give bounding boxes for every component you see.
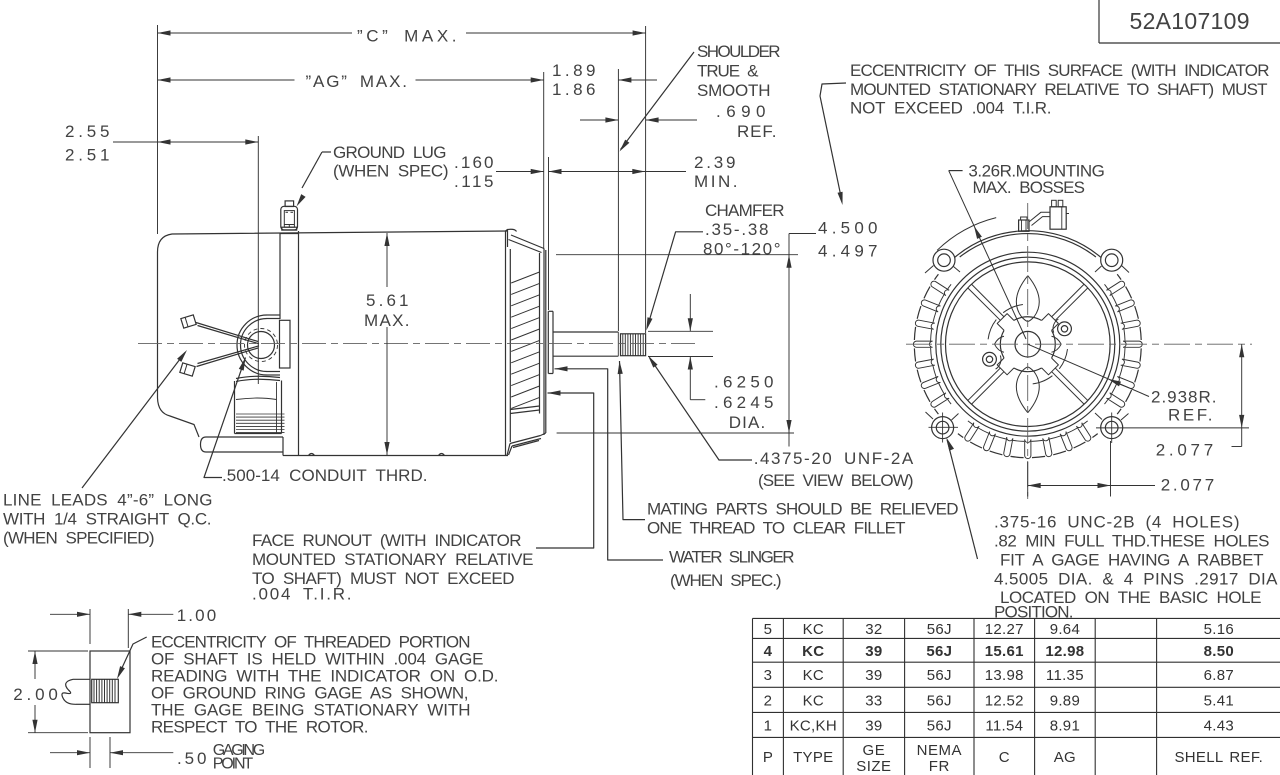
svg-text:11.35: 11.35 [1046, 667, 1084, 684]
svg-text:NEMA: NEMA [917, 742, 962, 759]
svg-text:2.938R.: 2.938R. [1151, 388, 1217, 407]
svg-text:DIA.: DIA. [729, 413, 766, 432]
svg-text:MOUNTED STATIONARY RELATIVE: MOUNTED STATIONARY RELATIVE [252, 550, 534, 569]
svg-text:FR: FR [929, 758, 950, 775]
svg-text:ONE THREAD TO CLEAR FILLET: ONE THREAD TO CLEAR FILLET [647, 519, 906, 538]
svg-text:.6250: .6250 [714, 373, 774, 392]
svg-text:56J: 56J [927, 621, 952, 638]
svg-text:.375-16 UNC-2B (4 HOLES): .375-16 UNC-2B (4 HOLES) [994, 513, 1240, 532]
svg-text:SIZE: SIZE [856, 758, 891, 775]
svg-text:5.61: 5.61 [366, 291, 409, 310]
svg-text:5.16: 5.16 [1204, 621, 1234, 638]
svg-text:39: 39 [865, 643, 882, 660]
svg-text:2.51: 2.51 [65, 146, 110, 165]
svg-text:2.00: 2.00 [13, 685, 58, 704]
svg-text:2.39: 2.39 [694, 153, 736, 172]
svg-text:4.43: 4.43 [1204, 717, 1234, 734]
svg-text:1.00: 1.00 [177, 606, 217, 625]
svg-text:.004 T.I.R.: .004 T.I.R. [252, 585, 352, 604]
svg-text:5: 5 [764, 621, 773, 638]
svg-text:”C” MAX.: ”C” MAX. [357, 27, 457, 46]
svg-text:5.41: 5.41 [1204, 692, 1234, 709]
svg-text:MAX. BOSSES: MAX. BOSSES [973, 178, 1086, 197]
svg-text:FIT A GAGE HAVING A RABBET: FIT A GAGE HAVING A RABBET [1000, 551, 1264, 570]
svg-text:KC: KC [803, 621, 824, 638]
svg-text:9.64: 9.64 [1050, 621, 1080, 638]
svg-text:6.87: 6.87 [1204, 667, 1234, 684]
svg-text:4: 4 [764, 643, 773, 660]
svg-text:1.89: 1.89 [552, 61, 596, 80]
svg-text:80°-120°: 80°-120° [703, 240, 781, 259]
svg-text:WATER SLINGER: WATER SLINGER [669, 548, 795, 567]
svg-text:MAX.: MAX. [364, 311, 410, 330]
svg-text:4.500: 4.500 [818, 219, 878, 238]
svg-text:1.86: 1.86 [552, 80, 596, 99]
svg-text:12.27: 12.27 [985, 621, 1024, 638]
svg-text:ECCENTRICITY OF THIS SURFACE (: ECCENTRICITY OF THIS SURFACE (WITH INDIC… [850, 61, 1270, 80]
svg-text:KC: KC [803, 667, 824, 684]
svg-text:(WHEN SPEC.): (WHEN SPEC.) [670, 571, 782, 590]
svg-text:.50: .50 [177, 749, 207, 768]
svg-text:32: 32 [865, 621, 882, 638]
svg-text:POINT: POINT [213, 756, 254, 773]
svg-text:.35-.38: .35-.38 [705, 220, 769, 239]
svg-text:.160: .160 [454, 153, 494, 172]
svg-text:CHAMFER: CHAMFER [705, 201, 785, 220]
svg-text:NOT EXCEED .004 T.I.R.: NOT EXCEED .004 T.I.R. [850, 99, 1052, 118]
svg-text:8.91: 8.91 [1050, 717, 1080, 734]
svg-text:1: 1 [764, 717, 773, 734]
svg-text:39: 39 [865, 667, 882, 684]
svg-text:RESPECT TO THE ROTOR.: RESPECT TO THE ROTOR. [151, 718, 369, 737]
svg-text:2.077: 2.077 [1161, 476, 1215, 495]
svg-text:4.5005 DIA. & 4 PINS .2917 DIA: 4.5005 DIA. & 4 PINS .2917 DIA [994, 570, 1278, 589]
svg-text:TYPE: TYPE [793, 749, 833, 766]
svg-text:”AG” MAX.: ”AG” MAX. [306, 72, 408, 91]
svg-text:GROUND LUG: GROUND LUG [333, 143, 447, 162]
svg-text:MATING PARTS SHOULD BE RELIEVE: MATING PARTS SHOULD BE RELIEVED [647, 500, 959, 519]
svg-text:12.98: 12.98 [1045, 643, 1084, 660]
svg-text:KC: KC [803, 692, 824, 709]
svg-text:C: C [999, 749, 1010, 766]
svg-text:.6245: .6245 [714, 393, 774, 412]
svg-text:2: 2 [764, 692, 773, 709]
svg-text:56J: 56J [927, 667, 952, 684]
svg-text:33: 33 [865, 692, 882, 709]
svg-text:56J: 56J [927, 692, 952, 709]
svg-text:(WHEN SPECIFIED): (WHEN SPECIFIED) [3, 529, 155, 548]
svg-text:2.55: 2.55 [65, 122, 110, 141]
svg-text:56J: 56J [927, 717, 952, 734]
svg-text:(WHEN SPEC): (WHEN SPEC) [333, 162, 449, 181]
svg-text:REF.: REF. [737, 122, 777, 141]
svg-text:P: P [763, 749, 773, 766]
svg-text:MOUNTED STATIONARY RELATIVE TO: MOUNTED STATIONARY RELATIVE TO SHAFT) MU… [850, 80, 1268, 99]
svg-text:SHOULDER: SHOULDER [697, 42, 781, 61]
svg-text:WITH 1/4 STRAIGHT Q.C.: WITH 1/4 STRAIGHT Q.C. [3, 510, 212, 529]
svg-text:15.61: 15.61 [985, 643, 1024, 660]
svg-text:56J: 56J [926, 643, 952, 660]
svg-text:LINE LEADS 4”-6” LONG: LINE LEADS 4”-6” LONG [3, 491, 213, 510]
svg-text:GE: GE [863, 742, 886, 759]
svg-text:13.98: 13.98 [985, 667, 1024, 684]
svg-text:9.89: 9.89 [1050, 692, 1080, 709]
svg-text:AG: AG [1054, 749, 1076, 766]
svg-text:.500-14 CONDUIT THRD.: .500-14 CONDUIT THRD. [222, 466, 428, 485]
svg-text:TRUE &: TRUE & [697, 62, 759, 81]
svg-text:12.52: 12.52 [985, 692, 1024, 709]
svg-text:52A107109: 52A107109 [1130, 8, 1251, 34]
svg-text:2.077: 2.077 [1156, 441, 1214, 460]
svg-text:(SEE VIEW BELOW): (SEE VIEW BELOW) [758, 471, 914, 490]
svg-text:KC,KH: KC,KH [790, 717, 837, 734]
svg-text:8.50: 8.50 [1204, 643, 1234, 660]
svg-text:FACE RUNOUT (WITH INDICATOR: FACE RUNOUT (WITH INDICATOR [252, 531, 522, 550]
svg-text:11.54: 11.54 [985, 717, 1023, 734]
svg-text:3: 3 [764, 667, 773, 684]
svg-text:4.497: 4.497 [818, 242, 878, 261]
svg-text:39: 39 [865, 717, 882, 734]
svg-text:KC: KC [802, 643, 824, 660]
svg-text:.82 MIN FULL THD.THESE HOLES: .82 MIN FULL THD.THESE HOLES [994, 532, 1270, 551]
svg-text:SHELL REF.: SHELL REF. [1174, 749, 1263, 766]
svg-text:SMOOTH: SMOOTH [697, 81, 771, 100]
